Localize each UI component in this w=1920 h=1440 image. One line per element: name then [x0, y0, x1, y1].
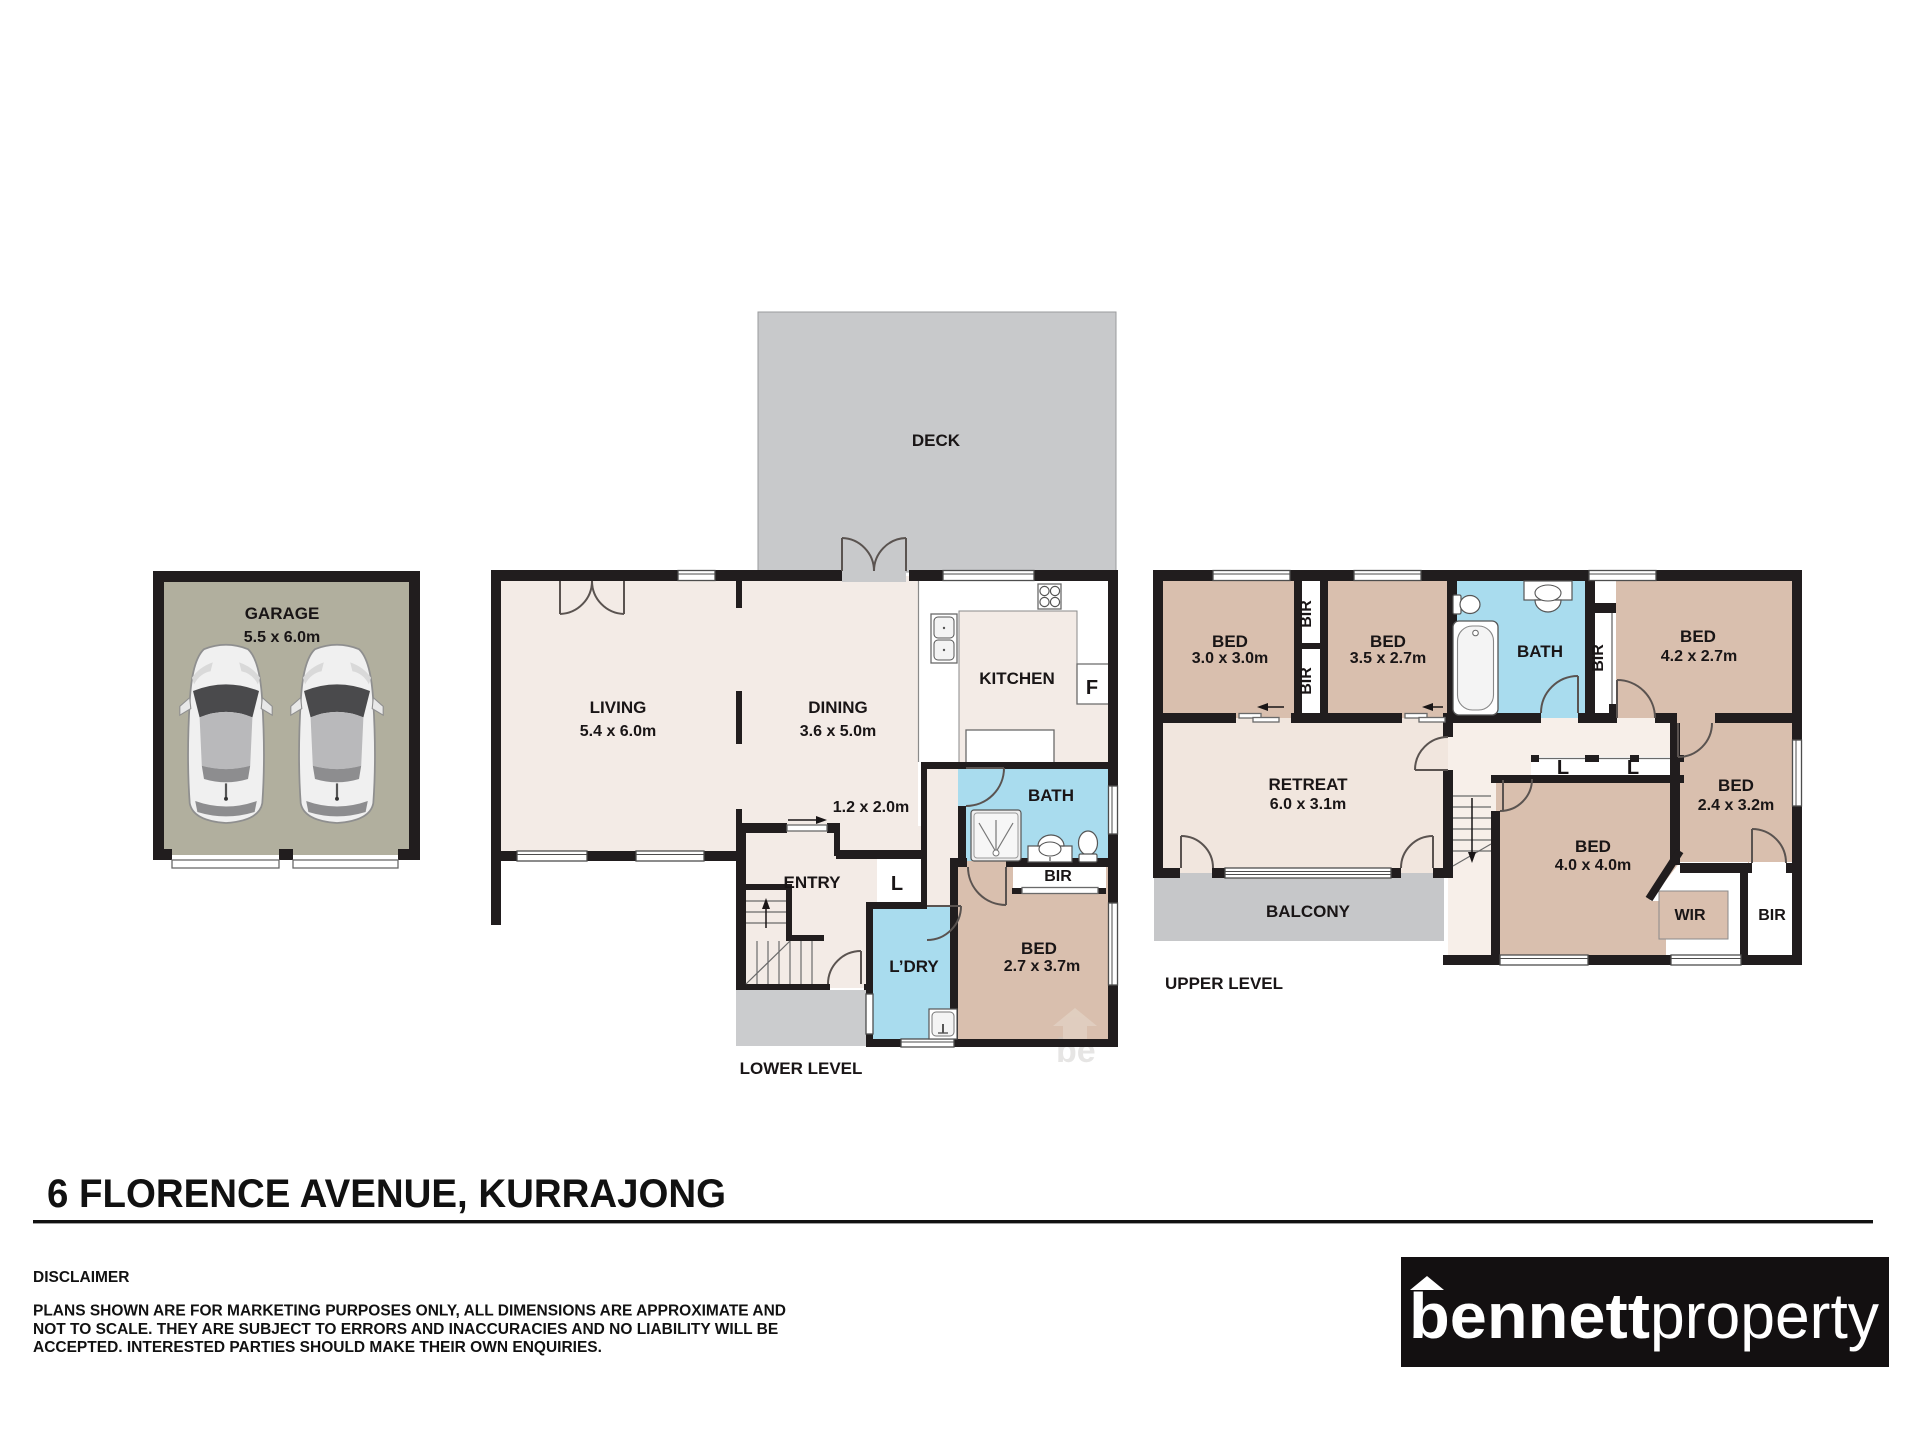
- svg-text:L’DRY: L’DRY: [889, 957, 939, 976]
- svg-text:NOT TO SCALE. THEY ARE SUBJECT: NOT TO SCALE. THEY ARE SUBJECT TO ERRORS…: [33, 1321, 778, 1338]
- svg-text:BIR: BIR: [1590, 644, 1607, 672]
- svg-text:BED: BED: [1370, 632, 1406, 651]
- svg-text:BIR: BIR: [1298, 600, 1315, 628]
- svg-text:GARAGE: GARAGE: [245, 604, 320, 623]
- svg-text:DECK: DECK: [912, 431, 961, 450]
- svg-text:3.5 x 2.7m: 3.5 x 2.7m: [1350, 650, 1427, 667]
- svg-text:BATH: BATH: [1517, 642, 1563, 661]
- svg-text:BED: BED: [1575, 837, 1611, 856]
- svg-text:5.5 x 6.0m: 5.5 x 6.0m: [244, 629, 321, 646]
- svg-text:BATH: BATH: [1028, 786, 1074, 805]
- svg-text:KITCHEN: KITCHEN: [979, 669, 1055, 688]
- svg-text:LOWER LEVEL: LOWER LEVEL: [740, 1059, 863, 1078]
- svg-text:3.6 x 5.0m: 3.6 x 5.0m: [800, 723, 877, 740]
- svg-text:4.0 x 4.0m: 4.0 x 4.0m: [1555, 857, 1632, 874]
- svg-text:2.7 x 3.7m: 2.7 x 3.7m: [1004, 958, 1081, 975]
- svg-text:WIR: WIR: [1674, 907, 1706, 924]
- svg-text:BIR: BIR: [1758, 907, 1786, 924]
- svg-text:BIR: BIR: [1044, 868, 1072, 885]
- svg-text:BIR: BIR: [1298, 667, 1315, 695]
- svg-text:L: L: [1627, 757, 1639, 779]
- svg-text:6 FLORENCE AVENUE, KURRAJONG: 6 FLORENCE AVENUE, KURRAJONG: [47, 1172, 726, 1216]
- svg-text:be: be: [1056, 1032, 1096, 1070]
- svg-text:BALCONY: BALCONY: [1266, 902, 1351, 921]
- svg-text:2.4 x 3.2m: 2.4 x 3.2m: [1698, 797, 1775, 814]
- svg-text:DINING: DINING: [808, 698, 868, 717]
- svg-text:DISCLAIMER: DISCLAIMER: [33, 1269, 129, 1286]
- svg-text:property: property: [1650, 1280, 1879, 1352]
- svg-text:5.4 x 6.0m: 5.4 x 6.0m: [580, 723, 657, 740]
- svg-text:BED: BED: [1212, 632, 1248, 651]
- svg-text:3.0 x 3.0m: 3.0 x 3.0m: [1192, 650, 1269, 667]
- svg-text:BED: BED: [1021, 939, 1057, 958]
- svg-text:6.0 x 3.1m: 6.0 x 3.1m: [1270, 796, 1347, 813]
- svg-text:RETREAT: RETREAT: [1268, 775, 1348, 794]
- svg-text:BED: BED: [1680, 627, 1716, 646]
- svg-text:F: F: [1086, 677, 1098, 699]
- svg-text:L: L: [1557, 757, 1569, 779]
- svg-text:PLANS SHOWN ARE FOR MARKETING: PLANS SHOWN ARE FOR MARKETING PURPOSES O…: [33, 1303, 786, 1320]
- svg-text:BED: BED: [1718, 776, 1754, 795]
- svg-text:UPPER LEVEL: UPPER LEVEL: [1165, 974, 1283, 993]
- svg-text:L: L: [891, 873, 903, 895]
- svg-text:1.2 x 2.0m: 1.2 x 2.0m: [833, 799, 910, 816]
- svg-text:bennett: bennett: [1409, 1280, 1650, 1352]
- svg-text:ENTRY: ENTRY: [784, 873, 842, 892]
- svg-text:ACCEPTED. INTERESTED PARTIES S: ACCEPTED. INTERESTED PARTIES SHOULD MAKE…: [33, 1339, 602, 1356]
- svg-text:LIVING: LIVING: [590, 698, 647, 717]
- svg-text:4.2 x 2.7m: 4.2 x 2.7m: [1661, 648, 1738, 665]
